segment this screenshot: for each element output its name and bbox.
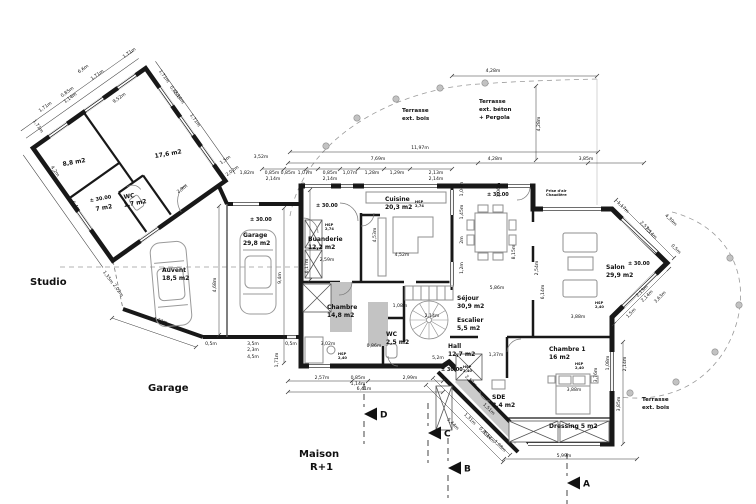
dimension-label: 1,08m [393,303,408,309]
ceiling-height-note: 2,40 [595,305,604,309]
room-label: Séjour [457,295,479,302]
terrace-label: Terrasse [402,108,429,114]
ceiling-height-note: 2,40 [338,356,347,360]
dim-tick [667,267,671,271]
dimension-label: 2,14m [425,313,440,319]
terrace-post-dot [437,85,443,91]
dim-tick [194,345,198,349]
dimension-label: 7,69m [371,156,386,162]
dimension-label: 3,85m [579,156,594,162]
floor-plan-drawing: Cuisine20,3 m2Buanderie12,2 m2Garage29,8… [0,0,756,504]
ceiling-height-note: 2,40 [463,369,472,373]
dimension-label: 0,85m [281,170,296,176]
dimension-label: 2m [459,236,465,244]
dimension-label: 2,99m [403,375,418,381]
spiral-stair [410,301,448,339]
room-area-label: 5,5 m2 [457,325,480,332]
dimension-label: 1,5m [625,307,638,320]
dimension-label: 3,52m [254,154,269,160]
dimension-label: 3,76m [593,367,599,382]
dimension-label: 0,5m [285,341,297,347]
dimension-label: 0,86m [367,343,382,349]
dimension-label: 0,85m [265,170,280,176]
room-label: Auvent [162,267,186,274]
dimension-label: 3,63m [653,290,668,305]
terrace-label: ext. bois [402,116,430,122]
dimension-label: 3,88m [571,314,586,320]
dimension-label: 1,29m [390,170,405,176]
dimension-label: 1,08m [605,355,611,370]
dimension-label: 1,07m [343,170,358,176]
dimension-label: 2,02m [225,164,241,178]
dimension-label: 4,52m [395,252,410,258]
room-area-label: 20,3 m2 [385,204,412,211]
room-label: Dressing 5 m2 [549,423,598,430]
studio-wing [11,44,236,268]
dimension-label: 1,71m [122,46,138,60]
dimension-label: 1,28m [365,170,380,176]
level-mark: ± 30.00 [441,367,463,373]
dimension-label: 1,71m [274,352,280,367]
room-label: Buanderie [308,236,343,243]
dimension-label: 1,82m [240,170,255,176]
dimension-label: 2,3m [247,347,259,353]
terrace-post-dot [712,349,718,355]
dimension-label: 6,14m [540,284,546,299]
dimension-label: 3,5m [247,341,259,347]
dimension-label: 2,14m [622,356,628,371]
ceiling-height-note: 2,40 [575,366,584,370]
car-icon [149,241,192,328]
dimension-label: 1,35m [101,270,115,286]
room-label: Cuisine [385,196,410,203]
site-label: Garage [148,383,189,394]
dimension-label: 4,28m [488,156,503,162]
dimension-label: 5,99m [557,453,572,459]
section-letter: D [380,411,387,421]
dimension-label: 2,14m [323,176,338,182]
dim-tick [110,316,114,320]
dimension-label: 3,02m [321,341,336,347]
dimension-label: 4,53m [372,227,378,242]
section-letter: C [444,430,451,440]
terrace-post-dot [736,302,742,308]
dimension-label: 4,28m [486,68,501,74]
dimension-label: 0,85m [351,375,366,381]
site-label: Maison [299,449,339,460]
terrace-post-dot [393,96,399,102]
dimension-label: 4,39m [663,213,678,228]
dimension-label: 1,71m [90,68,106,82]
room-area-label: 16 m2 [549,354,570,361]
terrace-post-dot [354,115,360,121]
dimension-label: 9,4m [277,272,283,284]
terrace-label: Terrasse [479,99,506,105]
room-label: WC [386,331,398,338]
dimension-label: 6,17m [304,258,310,273]
section-arrow-icon [567,477,580,490]
ceiling-height-note: Chaudière [546,193,567,197]
dimension-label: 1,07m [298,170,313,176]
dimension-label: 3,88m [567,387,582,393]
terrace-post-dot [727,255,733,261]
level-mark: ± 30.00 [628,261,650,267]
ceiling-height-note: 2,74 [415,204,424,208]
dimension-label: 1,5m [219,154,233,166]
terrace-post-dot [627,390,633,396]
terrace-label: + Pergola [479,115,510,121]
level-mark: ± 30.00 [316,203,338,209]
dimension-label: 2,57m [315,375,330,381]
room-area-label: 12,2 m2 [308,244,335,251]
section-letter: A [583,480,590,490]
section-letter: B [464,465,471,475]
room-label: Chambre 1 [549,346,586,353]
dimension-label: 5,2m [432,355,444,361]
dimension-label: 2,14m [429,176,444,182]
dimension-label: 2,13m [429,170,444,176]
dimension-label: 1,71m [157,69,171,85]
dimension-label: 6,6m [77,63,91,75]
room-label: SDE [492,394,505,401]
dimension-label: 11,97m [411,145,429,151]
dimension-label: 1,06m [459,181,465,196]
dimension-label: 2,14m [266,176,281,182]
dimension-label: 2,59m [320,257,335,263]
dimension-label: 4,28m [536,116,542,131]
terrace-post-dot [323,143,329,149]
room-label: Hall [448,343,461,350]
dimension-label: 1,71m [188,113,202,129]
site-label: Studio [30,277,67,288]
dimension-label: 2,54m [534,260,540,275]
dimension-label: 1,71m [38,100,54,114]
room-area-label: 29,9 m2 [606,272,633,279]
dimension-label: 3,85m [616,396,622,411]
section-arrow-icon [428,427,441,440]
dimension-label: 8,15m [511,244,517,259]
ceiling-height-note: 2,74 [325,227,334,231]
level-mark: ± 30.00 [250,217,272,223]
dimension-label: 1,37m [489,352,504,358]
dimension-label: 0,85m [323,170,338,176]
dimension-line [112,318,196,347]
room-label: Salon [606,264,625,271]
room-area-label: 8,4 m2 [492,402,515,409]
dimension-label: 1,45m [459,204,465,219]
terrace-post-dot [673,379,679,385]
terrace-label: ext. béton [479,106,511,113]
dimension-label: 4,5m [247,354,259,360]
dimension-label: 4,68m [212,277,218,292]
dimension-label: 1,2m [459,262,465,274]
terrace-label: ext. bois [642,405,670,411]
dimension-label: 5,86m [490,285,505,291]
site-label: R+1 [310,462,333,473]
terrace-label: Terrasse [642,397,669,403]
dimension-label: 1,06m [496,182,502,197]
room-area-label: 2,5 m2 [386,339,409,346]
dimension-label: 1,31m [462,412,477,427]
dimension-label: 0,5m [205,341,217,347]
floor-plan-sheet: Cuisine20,3 m2Buanderie12,2 m2Garage29,8… [0,0,756,504]
section-arrow-icon [364,408,377,421]
room-label: Chambre [327,304,357,311]
room-area-label: 14,8 m2 [327,312,354,319]
room-area-label: 12,7 m2 [448,351,475,358]
terrace-post-dot [482,80,488,86]
room-area-label: 18,5 m2 [162,275,189,282]
section-arrow-icon [448,462,461,475]
room-label: Escalier [457,317,483,324]
room-label: Garage [243,232,267,239]
room-area-label: 30,9 m2 [457,303,484,310]
dimension-label: 2,14m [172,90,186,106]
room-area-label: 29,8 m2 [243,240,270,247]
dimension-label: 0,5m [669,243,682,256]
